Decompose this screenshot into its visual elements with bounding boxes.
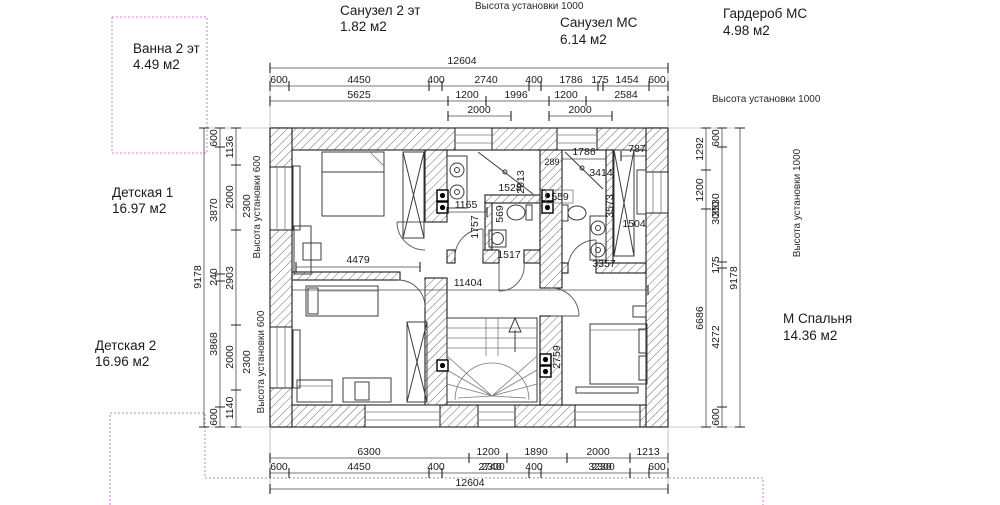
- dim-label: 600: [648, 74, 666, 86]
- socket-icon: [542, 202, 553, 213]
- dim-label: 5625: [347, 89, 371, 101]
- wall-bath-stub3: [524, 250, 540, 263]
- socket-icon: [540, 366, 551, 377]
- nightstand-master: [633, 306, 646, 317]
- dim-label: 4450: [347, 461, 371, 473]
- window-bottom-3: [575, 405, 640, 427]
- door-master: [551, 288, 579, 316]
- wall-kids-divider: [292, 272, 400, 280]
- dimensions-top: 12604 600 4450 400 2740 400 1786 175 145…: [270, 55, 668, 121]
- dim-label: 240: [208, 268, 220, 286]
- dim-label: 3414: [589, 167, 613, 179]
- dim-label: 9178: [192, 265, 204, 289]
- dim-label: 6686: [694, 306, 706, 330]
- room-label-wc-ms: Санузел МС: [560, 15, 638, 30]
- wall-b1: [540, 150, 562, 288]
- dim-label: 600: [208, 408, 220, 426]
- dimensions-bottom: 6300 1200 1890 2000 1213 600 4450 400 27…: [270, 446, 668, 494]
- dim-label: 1517: [497, 249, 521, 261]
- dim-label: 2903: [224, 266, 236, 290]
- dim-label: 3357: [592, 258, 616, 270]
- wall-wc-top: [485, 195, 540, 203]
- wardrobe-kids1: [403, 152, 424, 238]
- dim-label: 3868: [208, 332, 220, 356]
- toilet-ms: [562, 205, 586, 221]
- room-label-kids2: Детская 2: [95, 338, 156, 353]
- dim-label: 1140: [224, 397, 236, 420]
- socket-icon: [437, 202, 448, 213]
- pillow: [639, 329, 646, 353]
- dim-label: 400: [525, 74, 543, 86]
- dim-label: 600: [710, 408, 722, 426]
- dim-label: 4479: [346, 254, 370, 266]
- room-area-kids1: 16.97 м2: [112, 201, 166, 216]
- dim-label: 2759: [551, 345, 563, 369]
- dim-label: 1165: [455, 199, 478, 211]
- dim-label: 3870: [208, 198, 220, 222]
- chair-kids1: [303, 243, 321, 260]
- bed-kids1: [322, 152, 384, 216]
- bench-master: [576, 387, 638, 393]
- furniture-master: [576, 306, 647, 393]
- dim-label: 2000: [224, 345, 236, 369]
- socket-icon: [437, 360, 448, 371]
- note-install-height: Высота установки 600: [252, 155, 263, 258]
- dim-label: 11404: [454, 277, 483, 289]
- dim-label: 1890: [524, 446, 548, 458]
- dim-label: 1757: [469, 215, 481, 239]
- toilet-wc2: [507, 205, 532, 220]
- dim-label: 1200: [694, 178, 706, 202]
- room-label-kids1: Детская 1: [112, 185, 173, 200]
- dim-label: 1136: [224, 136, 236, 159]
- dim-label: 1200: [455, 89, 479, 101]
- sink-icon: [591, 221, 605, 235]
- door-kids2: [398, 280, 425, 307]
- dim-label: 787: [628, 143, 646, 155]
- dim-label-overlap: 3000: [710, 201, 722, 225]
- dim-label: 1786: [572, 146, 596, 158]
- dimensions-left: 9178 600 3870 240 3868 600 1136 2000 290…: [192, 128, 253, 427]
- dim-label: 1504: [622, 218, 646, 230]
- dim-label: 559: [551, 191, 569, 203]
- window-bottom-1: [365, 405, 440, 427]
- dim-label: 1786: [559, 74, 583, 86]
- staircase: [447, 318, 537, 402]
- dim-label: 6300: [357, 446, 381, 458]
- dim-label: 600: [710, 129, 722, 147]
- dim-label: 2000: [568, 104, 592, 116]
- dim-label: 12604: [447, 55, 476, 67]
- room-area-bath2: 4.49 м2: [133, 57, 180, 72]
- note-install-height: Высота установки 1000: [475, 1, 584, 12]
- dim-label: 9178: [728, 266, 740, 290]
- room-area-wc2: 1.82 м2: [340, 19, 387, 34]
- room-area-master: 14.36 м2: [783, 328, 837, 343]
- note-install-height: Высота установки 1000: [712, 94, 821, 105]
- dim-label: 1200: [476, 446, 500, 458]
- wardrobe-kids2: [407, 322, 427, 402]
- dim-label: 2584: [614, 89, 638, 101]
- window-bottom-2: [478, 405, 515, 427]
- furniture-wardrobe-ms: [614, 150, 646, 256]
- window-right-1: [646, 172, 668, 213]
- dim-label: 600: [270, 461, 288, 473]
- room-area-kids2: 16.96 м2: [95, 354, 149, 369]
- radiator-kids1: [293, 166, 300, 230]
- dim-label: 400: [427, 74, 445, 86]
- note-install-height: Высота установки 600: [256, 310, 267, 413]
- socket-icon: [540, 354, 551, 365]
- dim-label: 289: [544, 157, 559, 167]
- floor-plan-canvas: 12604 600 4450 400 2740 400 1786 175 145…: [0, 0, 1000, 505]
- furniture-kids2: [293, 286, 427, 402]
- door-wc2: [499, 263, 524, 291]
- dim-label-overlap: 2300: [591, 461, 615, 473]
- wall-bath-stub1: [447, 250, 455, 263]
- dim-label: 175: [591, 74, 609, 86]
- dim-label: 600: [270, 74, 288, 86]
- dim-label: 4272: [710, 325, 722, 349]
- window-left-2: [270, 327, 292, 388]
- dim-label: 1454: [615, 74, 639, 86]
- install-height-notes: Высота установки 1000 Высота установки 1…: [252, 1, 821, 413]
- room-label-master: М Спальня: [783, 311, 852, 326]
- dim-label: 3573: [604, 194, 616, 218]
- dim-label: 12604: [455, 477, 484, 489]
- dim-label: 1200: [554, 89, 578, 101]
- bed-kids2: [306, 286, 378, 316]
- pillow: [639, 356, 646, 380]
- sink-icon: [450, 185, 464, 199]
- wall-ms-stub: [562, 263, 568, 273]
- socket-icon: [437, 190, 448, 201]
- dimensions-right: 1292 1200 6686 600 3530 3000 175 4272 60…: [694, 128, 745, 427]
- bed-master: [590, 324, 647, 384]
- dim-label: 400: [525, 461, 543, 473]
- room-area-wardrobe-ms: 4.98 м2: [723, 23, 770, 38]
- dim-label: 1213: [636, 446, 660, 458]
- dim-label: 2000: [224, 185, 236, 209]
- room-label-wardrobe-ms: Гардероб МС: [723, 6, 807, 21]
- dim-label: 569: [494, 205, 506, 223]
- dim-label: 2740: [474, 74, 498, 86]
- dim-label: 2000: [586, 446, 610, 458]
- note-install-height: Высота установки 1000: [792, 148, 803, 257]
- dim-label: 400: [427, 461, 445, 473]
- dim-label: 1996: [504, 89, 528, 101]
- window-top-1: [455, 128, 492, 150]
- room-area-wc-ms: 6.14 м2: [560, 32, 607, 47]
- stair-direction-arrow: [509, 318, 521, 352]
- dim-label: 175: [710, 256, 722, 274]
- window-left-1: [270, 167, 292, 230]
- room-label-bath2: Ванна 2 эт: [133, 41, 200, 56]
- dim-label: 600: [208, 129, 220, 147]
- dim-label: 2300: [241, 350, 253, 374]
- dresser-kids2: [297, 380, 332, 402]
- room-label-wc2: Санузел 2 эт: [340, 3, 420, 18]
- sink-icon: [450, 163, 464, 177]
- dim-label: 2013: [515, 170, 527, 194]
- radiator-wardrobe: [637, 170, 646, 214]
- dim-label: 600: [648, 461, 666, 473]
- floor-plan-drawing: 12604 600 4450 400 2740 400 1786 175 145…: [0, 0, 1000, 505]
- dim-label: 4450: [347, 74, 371, 86]
- wall-a2: [425, 278, 447, 405]
- sink-icon: [591, 243, 605, 257]
- radiator-kids2: [293, 330, 300, 388]
- dim-label: 1292: [694, 137, 706, 161]
- dim-label: 2000: [467, 104, 491, 116]
- dim-label-overlap: 2300: [481, 461, 505, 473]
